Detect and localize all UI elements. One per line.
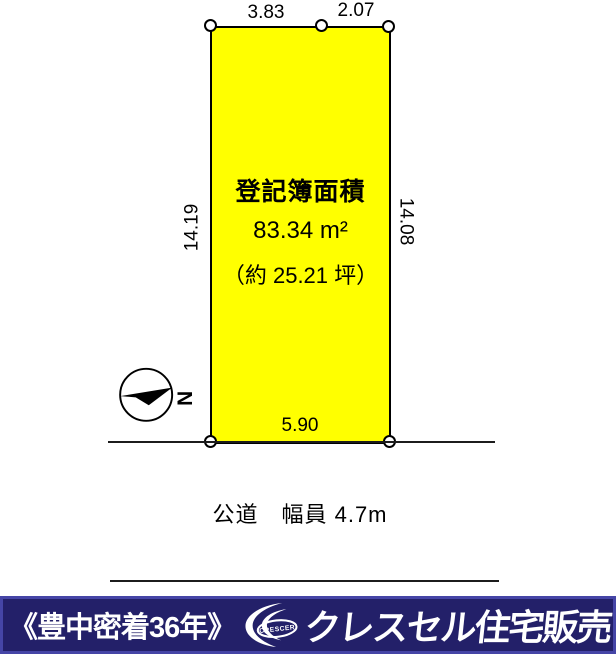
corner-marker-top-middle [315, 19, 328, 32]
registered-area-sqm: 83.34 m² [210, 217, 391, 245]
road-edge-near [108, 441, 495, 443]
registered-area-tsubo: （約 25.21 坪） [210, 258, 391, 290]
dimension-bottom: 5.90 [270, 416, 330, 435]
crescer-logo-icon: CRESCER [239, 602, 301, 648]
dimension-left: 14.19 [183, 193, 202, 263]
corner-marker-top-left [204, 19, 217, 32]
compass-icon: N [116, 361, 201, 426]
footer-slogan: 《豊中密着36年》 [9, 604, 235, 646]
road-label: 公道 幅員 4.7m [175, 497, 425, 529]
compass-north-label: N [172, 391, 195, 406]
dimension-right: 14.08 [397, 187, 416, 257]
footer-company-name: クレスセル住宅販売 [303, 599, 616, 651]
dimension-top-left: 3.83 [236, 3, 296, 22]
land-plot-flyer: 3.83 2.07 14.19 14.08 5.90 登記簿面積 83.34 m… [0, 0, 616, 654]
footer-banner: 《豊中密着36年》 CRESCER クレスセル住宅販売 [0, 596, 616, 654]
corner-marker-top-right [382, 20, 395, 33]
dimension-top-right: 2.07 [326, 1, 386, 20]
road-edge-far [110, 580, 499, 582]
registered-area-title: 登記簿面積 [210, 172, 391, 208]
